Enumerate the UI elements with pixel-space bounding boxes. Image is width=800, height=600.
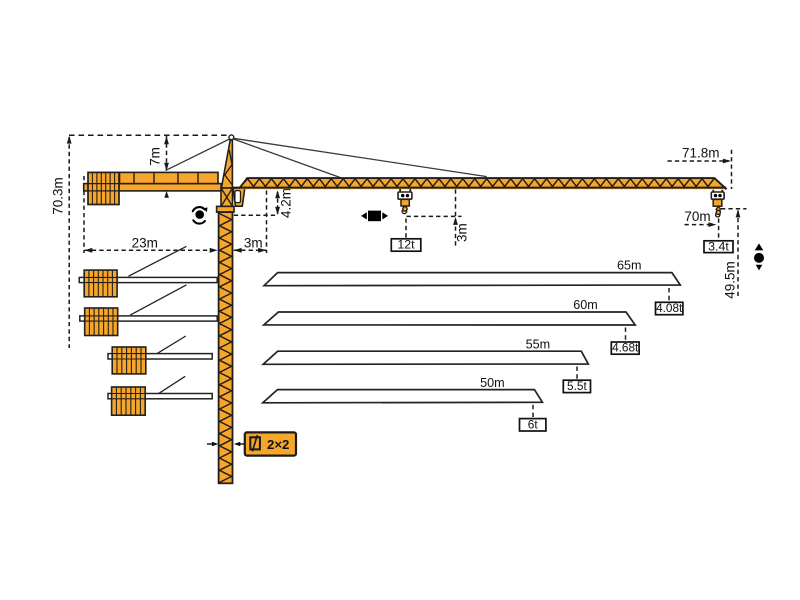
svg-text:60m: 60m bbox=[573, 298, 598, 312]
svg-text:4.2m: 4.2m bbox=[278, 188, 293, 218]
svg-text:71.8m: 71.8m bbox=[682, 146, 720, 161]
svg-text:49.5m: 49.5m bbox=[722, 261, 737, 299]
svg-text:4.68t: 4.68t bbox=[612, 341, 639, 355]
svg-text:65m: 65m bbox=[617, 259, 642, 273]
svg-text:5.5t: 5.5t bbox=[567, 379, 587, 393]
svg-text:7m: 7m bbox=[148, 147, 163, 166]
svg-text:3m: 3m bbox=[244, 235, 263, 250]
svg-text:12t: 12t bbox=[397, 238, 415, 252]
svg-text:3m: 3m bbox=[454, 223, 469, 242]
svg-text:70.3m: 70.3m bbox=[51, 177, 66, 215]
svg-text:6t: 6t bbox=[528, 417, 539, 431]
svg-text:2×2: 2×2 bbox=[267, 437, 289, 452]
svg-text:23m: 23m bbox=[132, 235, 158, 250]
svg-text:55m: 55m bbox=[526, 338, 551, 352]
svg-text:3.4t: 3.4t bbox=[708, 239, 729, 253]
svg-text:70m: 70m bbox=[684, 209, 710, 224]
svg-text:4.08t: 4.08t bbox=[656, 301, 683, 315]
svg-text:50m: 50m bbox=[480, 376, 505, 390]
